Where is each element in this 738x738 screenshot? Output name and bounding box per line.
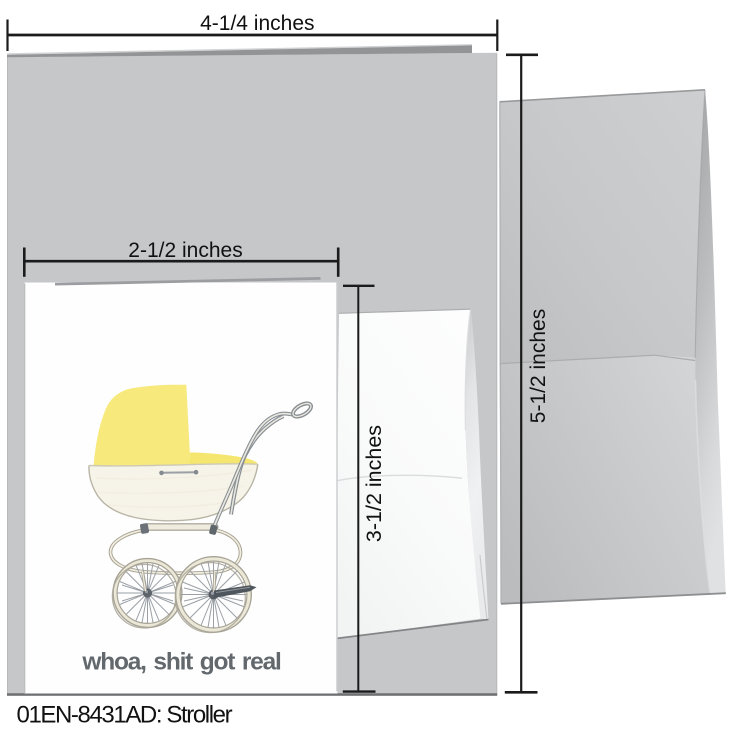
svg-text:01EN-8431AD: Stroller: 01EN-8431AD: Stroller bbox=[17, 702, 233, 729]
svg-text:4-1/4 inches: 4-1/4 inches bbox=[200, 12, 314, 35]
svg-text:3-1/2 inches: 3-1/2 inches bbox=[362, 425, 386, 542]
svg-text:2-1/2 inches: 2-1/2 inches bbox=[128, 239, 242, 262]
svg-text:whoa, shit got real: whoa, shit got real bbox=[81, 649, 281, 676]
svg-text:5-1/2 inches: 5-1/2 inches bbox=[527, 309, 550, 423]
